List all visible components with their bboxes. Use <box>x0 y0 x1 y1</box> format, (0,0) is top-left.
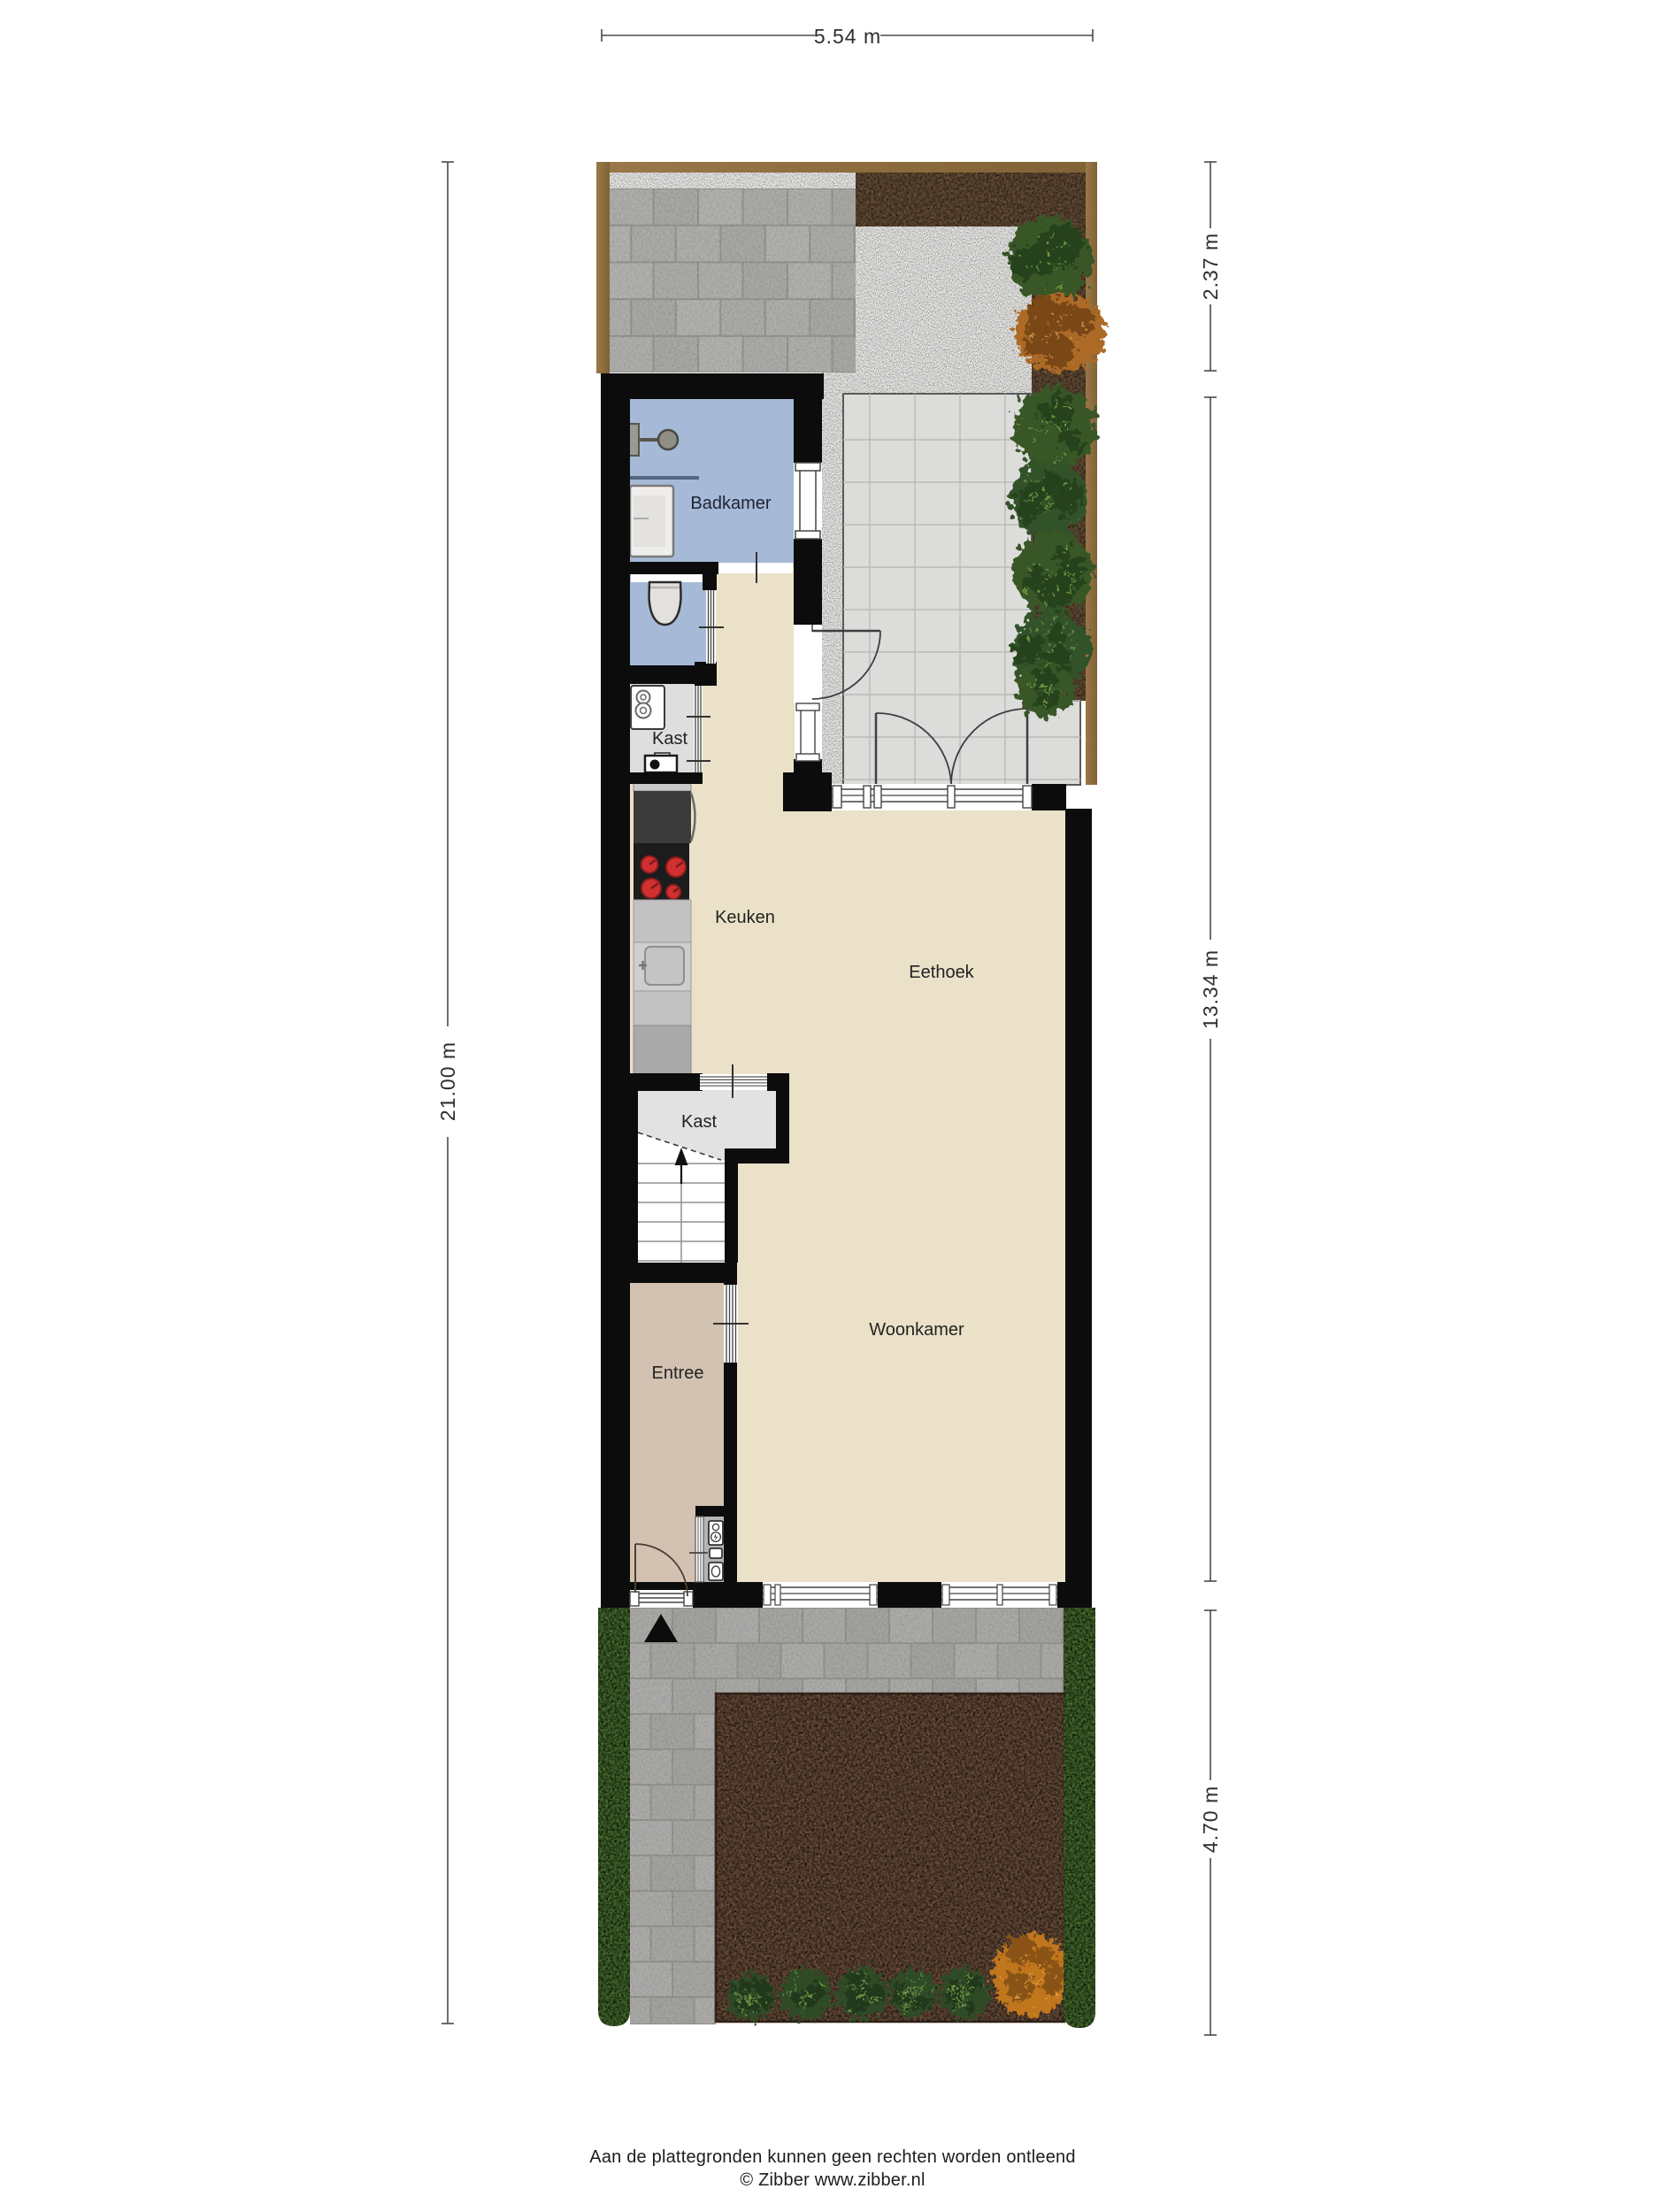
svg-text:Woonkamer: Woonkamer <box>869 1320 964 1340</box>
svg-text:5.54 m: 5.54 m <box>814 25 881 48</box>
svg-text:Entree: Entree <box>652 1363 704 1383</box>
svg-text:4.70 m: 4.70 m <box>1199 1786 1222 1853</box>
svg-text:© Zibber www.zibber.nl: © Zibber www.zibber.nl <box>740 2170 925 2190</box>
svg-text:13.34 m: 13.34 m <box>1199 949 1222 1029</box>
svg-text:21.00 m: 21.00 m <box>436 1041 459 1121</box>
svg-text:Aan de plattegronden kunnen ge: Aan de plattegronden kunnen geen rechten… <box>589 2147 1075 2167</box>
svg-text:Eethoek: Eethoek <box>909 963 974 982</box>
svg-text:Kast: Kast <box>681 1112 717 1132</box>
svg-text:2.37 m: 2.37 m <box>1199 233 1222 300</box>
svg-text:Kast: Kast <box>652 729 687 749</box>
svg-text:Badkamer: Badkamer <box>690 494 771 513</box>
svg-text:Keuken: Keuken <box>715 908 775 927</box>
